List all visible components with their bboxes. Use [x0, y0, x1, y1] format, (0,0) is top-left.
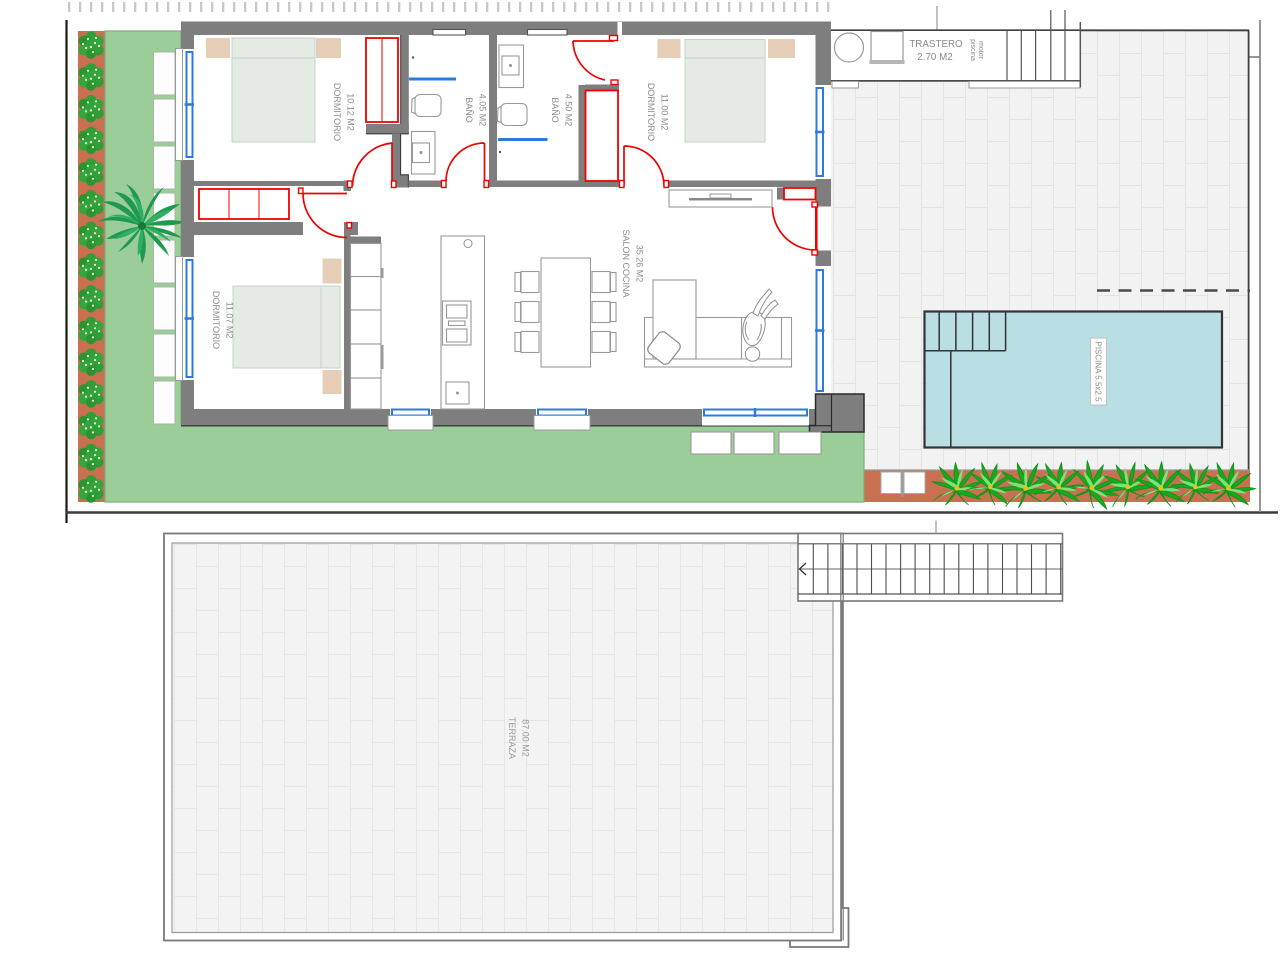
svg-text:PISCINA 5.5x2.5: PISCINA 5.5x2.5: [1094, 341, 1103, 402]
svg-text:TRASTERO: TRASTERO: [909, 39, 963, 50]
svg-text:2.70 M2: 2.70 M2: [917, 52, 952, 63]
svg-text:motorpiscina: motorpiscina: [969, 39, 984, 61]
